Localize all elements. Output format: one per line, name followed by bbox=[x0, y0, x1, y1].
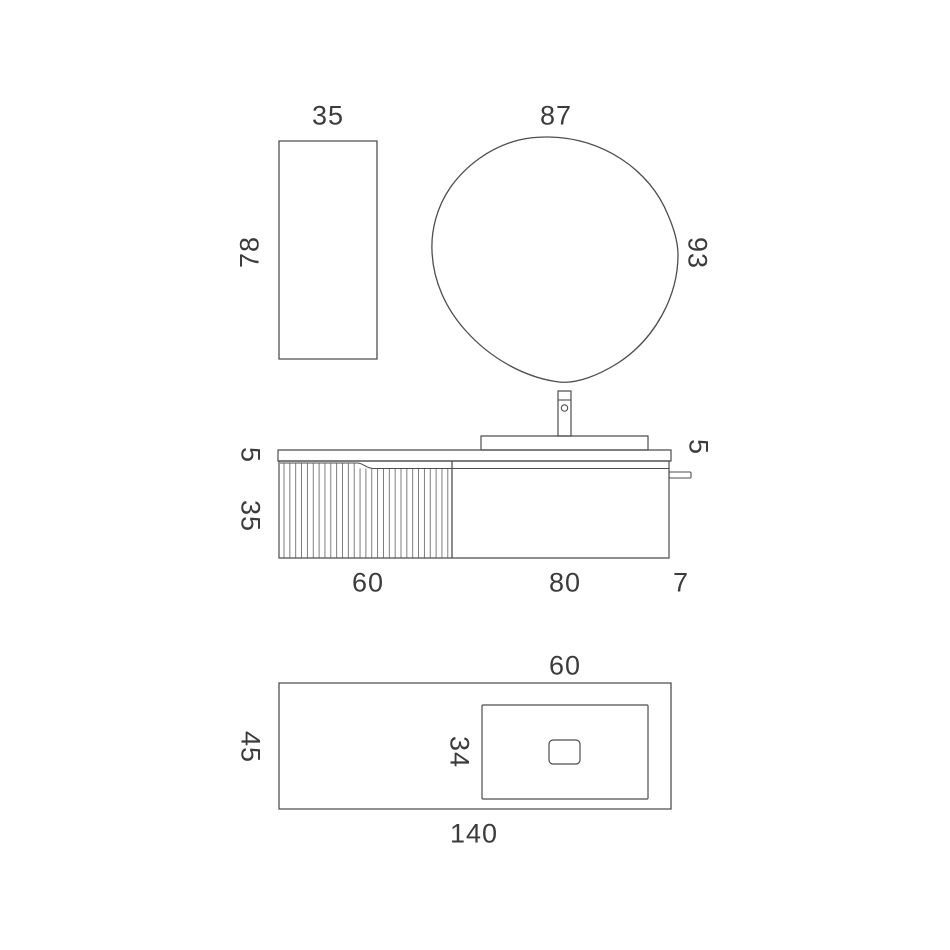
side-cabinet-outline bbox=[279, 141, 377, 359]
dim-side-cabinet-width: 35 bbox=[312, 103, 344, 130]
dim-mirror-width: 87 bbox=[540, 103, 572, 130]
faucet bbox=[558, 391, 571, 436]
dim-basin-depth: 34 bbox=[446, 736, 473, 768]
basin-front-outline bbox=[481, 436, 648, 450]
door-groove-line bbox=[280, 463, 669, 469]
dim-side-rail-depth: 7 bbox=[673, 570, 689, 597]
dim-left-door-width: 60 bbox=[352, 570, 384, 597]
faucet-stem bbox=[558, 391, 571, 436]
dim-basin-width-top: 60 bbox=[549, 653, 581, 680]
fluted-door-lines bbox=[284, 463, 448, 558]
faucet-dot bbox=[561, 405, 567, 411]
drain-outline bbox=[549, 740, 580, 764]
drawing-canvas: 35 78 87 93 5 35 5 60 80 7 60 45 34 140 bbox=[0, 0, 950, 950]
dim-right-door-width: 80 bbox=[549, 570, 581, 597]
countertop-front-outline bbox=[278, 450, 671, 461]
basin-top-view-outline bbox=[482, 705, 648, 799]
dim-vanity-height: 35 bbox=[237, 500, 264, 532]
dim-countertop-thickness: 5 bbox=[237, 447, 264, 463]
dim-mirror-height: 93 bbox=[684, 237, 711, 269]
dim-side-cabinet-height: 78 bbox=[237, 236, 264, 268]
vanity-cabinet-outline bbox=[279, 461, 669, 558]
mirror-outline bbox=[432, 137, 678, 382]
dim-counter-depth: 45 bbox=[237, 731, 264, 763]
dim-basin-height: 5 bbox=[685, 439, 712, 455]
dim-total-width: 140 bbox=[450, 821, 498, 848]
side-rail-tab bbox=[669, 472, 691, 478]
technical-drawing bbox=[0, 0, 950, 950]
counter-top-view-outline bbox=[279, 683, 671, 809]
